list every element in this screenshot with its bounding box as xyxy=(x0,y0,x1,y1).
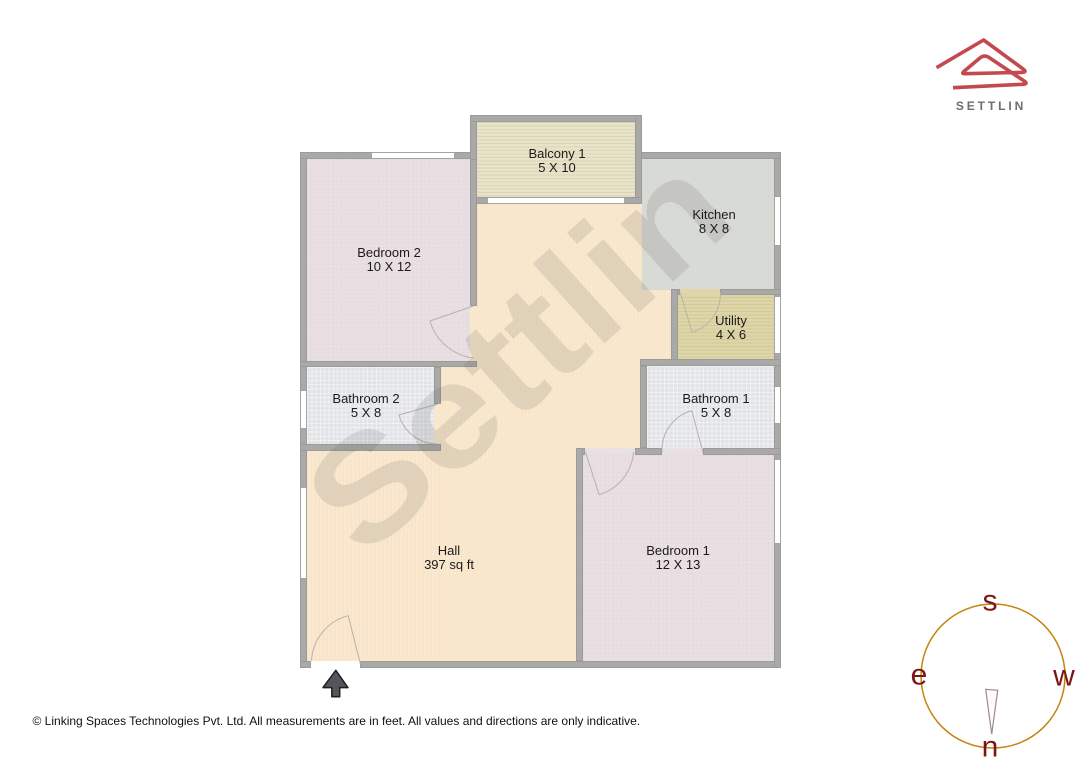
svg-text:w: w xyxy=(1052,660,1075,693)
svg-text:SETTLIN: SETTLIN xyxy=(956,99,1026,113)
svg-text:e: e xyxy=(911,659,928,692)
svg-text:n: n xyxy=(982,731,999,764)
svg-text:s: s xyxy=(983,585,998,618)
